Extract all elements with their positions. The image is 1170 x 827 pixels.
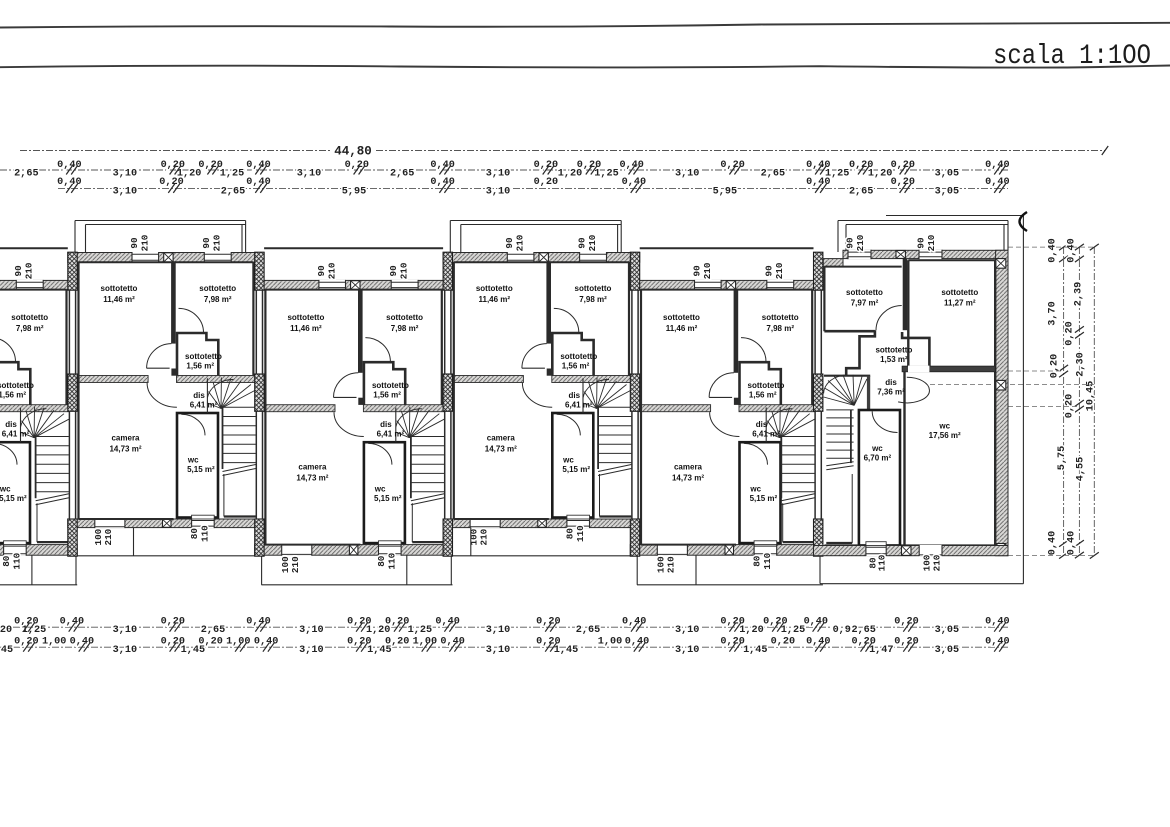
svg-text:0,20: 0,20 bbox=[771, 637, 795, 648]
svg-text:0,20: 0,20 bbox=[1065, 394, 1076, 418]
svg-text:110: 110 bbox=[200, 525, 211, 542]
svg-text:wc: wc bbox=[374, 485, 386, 494]
svg-text:6,41 m²: 6,41 m² bbox=[377, 430, 405, 439]
svg-text:90: 90 bbox=[316, 265, 327, 277]
svg-text:3,05: 3,05 bbox=[935, 625, 959, 636]
svg-text:14,73 m²: 14,73 m² bbox=[672, 474, 704, 483]
svg-text:dis: dis bbox=[380, 420, 392, 429]
svg-text:44,80: 44,80 bbox=[334, 145, 372, 159]
svg-text:210: 210 bbox=[932, 554, 943, 571]
svg-text:sottotetto: sottotetto bbox=[199, 284, 236, 293]
svg-text:2,65: 2,65 bbox=[849, 186, 873, 197]
svg-text:90: 90 bbox=[13, 265, 24, 277]
svg-text:dis: dis bbox=[193, 391, 205, 400]
svg-text:sottotetto: sottotetto bbox=[575, 284, 612, 293]
svg-text:0,40: 0,40 bbox=[1048, 531, 1059, 555]
svg-text:17,56 m²: 17,56 m² bbox=[929, 431, 961, 440]
svg-text:2,39: 2,39 bbox=[1074, 282, 1085, 306]
svg-text:0,20: 0,20 bbox=[159, 177, 183, 188]
svg-text:1,00: 1,00 bbox=[226, 637, 250, 648]
svg-text:1,47: 1,47 bbox=[869, 645, 893, 656]
svg-text:210: 210 bbox=[103, 528, 114, 545]
svg-text:0,40: 0,40 bbox=[804, 617, 828, 628]
svg-text:7,98 m²: 7,98 m² bbox=[204, 295, 232, 304]
svg-text:wc: wc bbox=[749, 485, 761, 494]
svg-text:110: 110 bbox=[12, 552, 23, 569]
svg-text:0,20: 0,20 bbox=[1065, 321, 1076, 345]
svg-text:7,98 m²: 7,98 m² bbox=[579, 295, 607, 304]
svg-text:scala 1:1OO: scala 1:1OO bbox=[993, 41, 1151, 72]
svg-text:dis: dis bbox=[885, 378, 897, 387]
svg-text:5,75: 5,75 bbox=[1057, 446, 1068, 470]
svg-text:1,56 m²: 1,56 m² bbox=[186, 362, 214, 371]
svg-text:0,40: 0,40 bbox=[1048, 238, 1059, 262]
svg-text:2,30: 2,30 bbox=[1076, 352, 1087, 376]
svg-text:sottotetto: sottotetto bbox=[11, 313, 48, 322]
svg-text:5,95: 5,95 bbox=[713, 186, 737, 197]
svg-text:90: 90 bbox=[129, 237, 140, 249]
svg-text:80: 80 bbox=[1, 555, 12, 567]
svg-text:3,10: 3,10 bbox=[113, 645, 137, 656]
svg-text:6,70 m²: 6,70 m² bbox=[864, 454, 892, 463]
svg-text:90: 90 bbox=[691, 265, 702, 277]
svg-text:1,25: 1,25 bbox=[781, 625, 805, 636]
svg-text:1,45: 1,45 bbox=[554, 645, 578, 656]
svg-text:sottotetto: sottotetto bbox=[762, 313, 799, 322]
svg-text:80: 80 bbox=[189, 528, 200, 540]
svg-text:0,40: 0,40 bbox=[806, 637, 830, 648]
svg-text:3,05: 3,05 bbox=[935, 186, 959, 197]
svg-text:0,40: 0,40 bbox=[246, 177, 270, 188]
svg-text:3,10: 3,10 bbox=[113, 625, 137, 636]
svg-text:dis: dis bbox=[5, 420, 17, 429]
svg-text:1,20: 1,20 bbox=[366, 625, 390, 636]
svg-text:3,10: 3,10 bbox=[299, 645, 323, 656]
svg-text:wc: wc bbox=[871, 444, 883, 453]
svg-text:6,41 m²: 6,41 m² bbox=[752, 430, 780, 439]
svg-text:210: 210 bbox=[587, 234, 598, 251]
svg-text:2,65: 2,65 bbox=[576, 625, 600, 636]
svg-text:5,15 m²: 5,15 m² bbox=[374, 494, 402, 503]
svg-text:0,40: 0,40 bbox=[985, 617, 1009, 628]
svg-text:3,05: 3,05 bbox=[935, 645, 959, 656]
svg-text:20: 20 bbox=[0, 625, 12, 636]
svg-text:1,00: 1,00 bbox=[42, 637, 66, 648]
svg-text:210: 210 bbox=[515, 234, 526, 251]
svg-text:sottotetto: sottotetto bbox=[476, 284, 513, 293]
svg-text:210: 210 bbox=[24, 262, 35, 279]
svg-text:14,73 m²: 14,73 m² bbox=[296, 474, 328, 483]
svg-text:110: 110 bbox=[762, 552, 773, 569]
svg-text:5,95: 5,95 bbox=[342, 186, 366, 197]
svg-text:camera: camera bbox=[111, 434, 140, 443]
svg-text:6,41 m²: 6,41 m² bbox=[2, 430, 30, 439]
svg-text:210: 210 bbox=[774, 262, 785, 279]
svg-text:80: 80 bbox=[752, 555, 763, 567]
svg-text:0,40: 0,40 bbox=[70, 637, 94, 648]
svg-text:3,10: 3,10 bbox=[486, 645, 510, 656]
svg-text:7,98 m²: 7,98 m² bbox=[391, 324, 419, 333]
svg-text:0,40: 0,40 bbox=[60, 617, 84, 628]
svg-text:0,20: 0,20 bbox=[161, 617, 185, 628]
svg-text:1,20: 1,20 bbox=[739, 625, 763, 636]
svg-text:1,53 m²: 1,53 m² bbox=[880, 355, 908, 364]
svg-text:1,45: 1,45 bbox=[181, 645, 205, 656]
svg-text:7,98 m²: 7,98 m² bbox=[16, 324, 44, 333]
svg-text:sottotetto: sottotetto bbox=[372, 381, 409, 390]
svg-text:4,55: 4,55 bbox=[1076, 457, 1087, 481]
svg-text:210: 210 bbox=[139, 234, 150, 251]
svg-text:0,40: 0,40 bbox=[246, 617, 270, 628]
svg-text:3,10: 3,10 bbox=[675, 625, 699, 636]
svg-text:0,40: 0,40 bbox=[1067, 531, 1078, 555]
svg-text:90: 90 bbox=[845, 237, 856, 249]
svg-text:0,40: 0,40 bbox=[806, 177, 830, 188]
svg-text:1,25: 1,25 bbox=[220, 168, 244, 179]
svg-text:90: 90 bbox=[201, 237, 212, 249]
svg-text:11,46 m²: 11,46 m² bbox=[479, 295, 511, 304]
svg-text:14,73 m²: 14,73 m² bbox=[485, 445, 517, 454]
svg-text:11,46 m²: 11,46 m² bbox=[666, 324, 698, 333]
svg-text:3,10: 3,10 bbox=[486, 625, 510, 636]
svg-text:3,10: 3,10 bbox=[486, 186, 510, 197]
svg-text:1,00: 1,00 bbox=[413, 637, 437, 648]
svg-text:camera: camera bbox=[487, 434, 516, 443]
svg-text:210: 210 bbox=[290, 556, 301, 573]
svg-text:14,73 m²: 14,73 m² bbox=[109, 445, 141, 454]
svg-text:wc: wc bbox=[0, 485, 11, 494]
svg-text:7,98 m²: 7,98 m² bbox=[766, 324, 794, 333]
svg-text:210: 210 bbox=[478, 528, 489, 545]
svg-text:11,27 m²: 11,27 m² bbox=[944, 299, 976, 308]
svg-text:sottotetto: sottotetto bbox=[846, 288, 883, 297]
svg-text:2,65: 2,65 bbox=[14, 168, 38, 179]
svg-text:90: 90 bbox=[504, 237, 515, 249]
svg-text:3,70: 3,70 bbox=[1048, 301, 1059, 325]
svg-text:10,45: 10,45 bbox=[1086, 381, 1097, 412]
svg-text:0,20: 0,20 bbox=[894, 637, 918, 648]
svg-text:0,20: 0,20 bbox=[536, 617, 560, 628]
svg-text:1,25: 1,25 bbox=[22, 625, 46, 636]
svg-text:3,10: 3,10 bbox=[299, 625, 323, 636]
svg-text:sottotetto: sottotetto bbox=[287, 313, 324, 322]
svg-text:2,65: 2,65 bbox=[221, 186, 245, 197]
svg-text:7,36 m²: 7,36 m² bbox=[877, 388, 905, 397]
svg-text:90: 90 bbox=[764, 265, 775, 277]
svg-text:5,15 m²: 5,15 m² bbox=[0, 494, 27, 503]
svg-text:3,10: 3,10 bbox=[297, 168, 321, 179]
svg-text:wc: wc bbox=[187, 456, 199, 465]
svg-text:1,25: 1,25 bbox=[408, 625, 432, 636]
svg-text:0,40: 0,40 bbox=[430, 177, 454, 188]
svg-text:sottotetto: sottotetto bbox=[0, 381, 34, 390]
svg-text:sottotetto: sottotetto bbox=[185, 352, 222, 361]
svg-text:sottotetto: sottotetto bbox=[875, 346, 912, 355]
svg-text:1,00: 1,00 bbox=[598, 637, 622, 648]
svg-text:80: 80 bbox=[376, 555, 387, 567]
svg-text:sottotetto: sottotetto bbox=[386, 313, 423, 322]
svg-text:sottotetto: sottotetto bbox=[101, 284, 138, 293]
svg-text:210: 210 bbox=[399, 262, 410, 279]
svg-text:90: 90 bbox=[577, 237, 588, 249]
svg-text:0,20: 0,20 bbox=[720, 637, 744, 648]
svg-text:wc: wc bbox=[938, 422, 950, 431]
svg-text:0,40: 0,40 bbox=[985, 637, 1009, 648]
svg-text:1,56 m²: 1,56 m² bbox=[373, 391, 401, 400]
svg-text:1,56 m²: 1,56 m² bbox=[749, 391, 777, 400]
svg-text:camera: camera bbox=[298, 463, 327, 472]
svg-text:6,41 m²: 6,41 m² bbox=[190, 401, 218, 410]
svg-text:2,65: 2,65 bbox=[201, 625, 225, 636]
svg-text:sottotetto: sottotetto bbox=[663, 313, 700, 322]
svg-text:110: 110 bbox=[877, 554, 888, 571]
svg-text:1,56 m²: 1,56 m² bbox=[0, 391, 26, 400]
svg-text:80: 80 bbox=[564, 528, 575, 540]
svg-text:5,15 m²: 5,15 m² bbox=[750, 494, 778, 503]
svg-text:0,40: 0,40 bbox=[622, 617, 646, 628]
svg-text:110: 110 bbox=[575, 525, 586, 542]
svg-text:0,40: 0,40 bbox=[625, 637, 649, 648]
svg-text:3,10: 3,10 bbox=[486, 168, 510, 179]
svg-text:0,20: 0,20 bbox=[891, 177, 915, 188]
svg-text:3,10: 3,10 bbox=[675, 645, 699, 656]
svg-text:90: 90 bbox=[916, 237, 927, 249]
svg-text:dis: dis bbox=[756, 420, 768, 429]
svg-text:1,56 m²: 1,56 m² bbox=[562, 362, 590, 371]
svg-text:2,65: 2,65 bbox=[761, 168, 785, 179]
svg-text:210: 210 bbox=[326, 262, 337, 279]
svg-text:11,46 m²: 11,46 m² bbox=[290, 324, 322, 333]
svg-text:0,40: 0,40 bbox=[254, 637, 278, 648]
svg-text:0,40: 0,40 bbox=[440, 637, 464, 648]
svg-text:1,45: 1,45 bbox=[367, 645, 391, 656]
svg-text:3,10: 3,10 bbox=[675, 168, 699, 179]
svg-text:0,20: 0,20 bbox=[534, 177, 558, 188]
svg-text:210: 210 bbox=[212, 234, 223, 251]
svg-text:210: 210 bbox=[926, 234, 937, 251]
svg-text:0,20: 0,20 bbox=[1050, 354, 1061, 378]
svg-text:dis: dis bbox=[569, 391, 581, 400]
svg-text:0,20: 0,20 bbox=[14, 637, 38, 648]
svg-text:210: 210 bbox=[702, 262, 713, 279]
svg-text:5,15 m²: 5,15 m² bbox=[562, 465, 590, 474]
svg-text:2,65: 2,65 bbox=[390, 168, 414, 179]
svg-text:sottotetto: sottotetto bbox=[748, 381, 785, 390]
svg-text:0,20: 0,20 bbox=[894, 617, 918, 628]
svg-text:sottotetto: sottotetto bbox=[560, 352, 597, 361]
svg-text:0,40: 0,40 bbox=[622, 177, 646, 188]
svg-text:110: 110 bbox=[386, 552, 397, 569]
svg-text:sottotetto: sottotetto bbox=[941, 288, 978, 297]
svg-text:0,40: 0,40 bbox=[1067, 238, 1078, 262]
svg-text:3,05: 3,05 bbox=[935, 168, 959, 179]
svg-text:3,10: 3,10 bbox=[113, 186, 137, 197]
svg-text:camera: camera bbox=[674, 463, 703, 472]
svg-text:0,40: 0,40 bbox=[435, 617, 459, 628]
svg-text:90: 90 bbox=[388, 265, 399, 277]
svg-text:45: 45 bbox=[1, 645, 13, 656]
svg-text:6,41 m²: 6,41 m² bbox=[565, 401, 593, 410]
svg-text:210: 210 bbox=[855, 234, 866, 251]
svg-text:0,40: 0,40 bbox=[57, 177, 81, 188]
svg-text:5,15 m²: 5,15 m² bbox=[187, 465, 215, 474]
svg-text:2,65: 2,65 bbox=[851, 625, 875, 636]
svg-text:1,45: 1,45 bbox=[743, 645, 767, 656]
svg-text:7,97 m²: 7,97 m² bbox=[851, 299, 879, 308]
svg-text:210: 210 bbox=[666, 556, 677, 573]
svg-text:11,46 m²: 11,46 m² bbox=[103, 295, 135, 304]
svg-text:0,40: 0,40 bbox=[985, 177, 1009, 188]
svg-text:3,10: 3,10 bbox=[113, 168, 137, 179]
svg-text:wc: wc bbox=[562, 456, 574, 465]
